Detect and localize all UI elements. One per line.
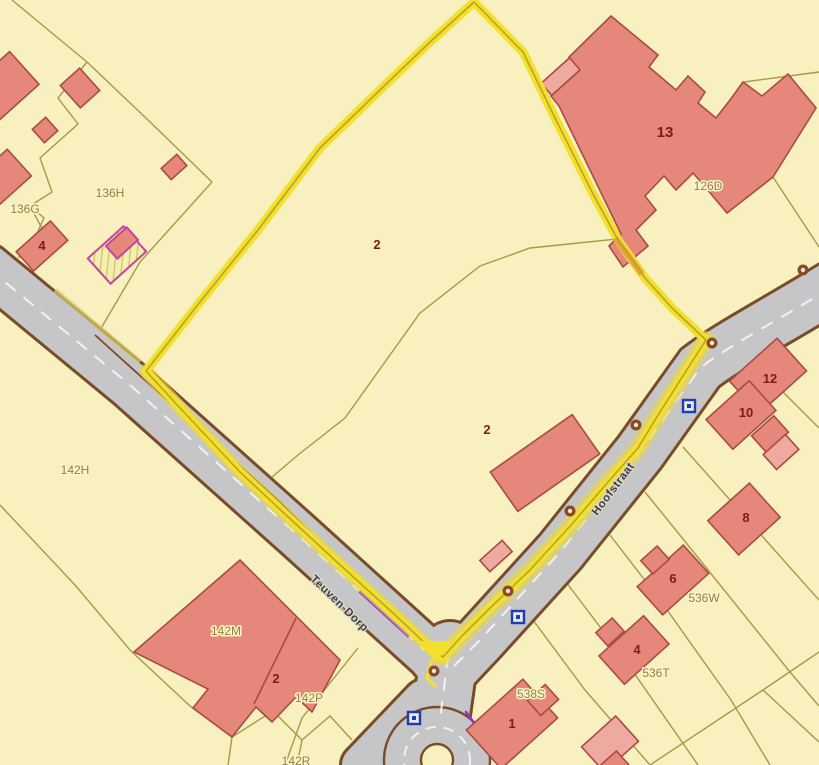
parcel-label: 2 xyxy=(272,671,279,686)
boundary-dot-marker[interactable] xyxy=(798,265,809,276)
parcel-label: 142R xyxy=(282,754,311,765)
parcel-label: 4 xyxy=(38,238,46,253)
parcel-label: 142P xyxy=(295,691,323,705)
parcel-label: 10 xyxy=(739,405,753,420)
parcel-label: 6 xyxy=(669,571,676,586)
boundary-dot-marker[interactable] xyxy=(429,666,440,677)
boundary-dot-marker[interactable] xyxy=(707,338,718,349)
parcel-label: 8 xyxy=(742,510,749,525)
parcel-label: 142H xyxy=(61,463,90,477)
roundabout-island xyxy=(421,744,453,765)
parcel-label: 536W xyxy=(688,591,720,605)
parcel-label: 136G xyxy=(10,202,39,216)
map-viewport[interactable]: 136G136H4213126D142H2121086536W4536T538S… xyxy=(0,0,819,765)
node-square-marker[interactable] xyxy=(512,611,524,623)
cadastral-map-canvas[interactable]: 136G136H4213126D142H2121086536W4536T538S… xyxy=(0,0,819,765)
parcel-label: 1 xyxy=(508,716,515,731)
parcel-label: 136H xyxy=(96,186,125,200)
parcel-label: 4 xyxy=(633,642,641,657)
parcel-label: 126D xyxy=(694,179,723,193)
node-square-marker[interactable] xyxy=(683,400,695,412)
parcel-label: 2 xyxy=(373,237,380,252)
parcel-label: 13 xyxy=(657,124,674,141)
parcel-label: 142M xyxy=(211,624,241,638)
node-square-marker[interactable] xyxy=(408,712,420,724)
boundary-dot-marker[interactable] xyxy=(503,586,514,597)
parcel-label: 536T xyxy=(642,666,670,680)
parcel-label: 538S xyxy=(517,687,545,701)
parcel-label: 2 xyxy=(483,422,490,437)
boundary-dot-marker[interactable] xyxy=(565,506,576,517)
parcel-label: 12 xyxy=(763,371,777,386)
boundary-dot-marker[interactable] xyxy=(631,420,642,431)
